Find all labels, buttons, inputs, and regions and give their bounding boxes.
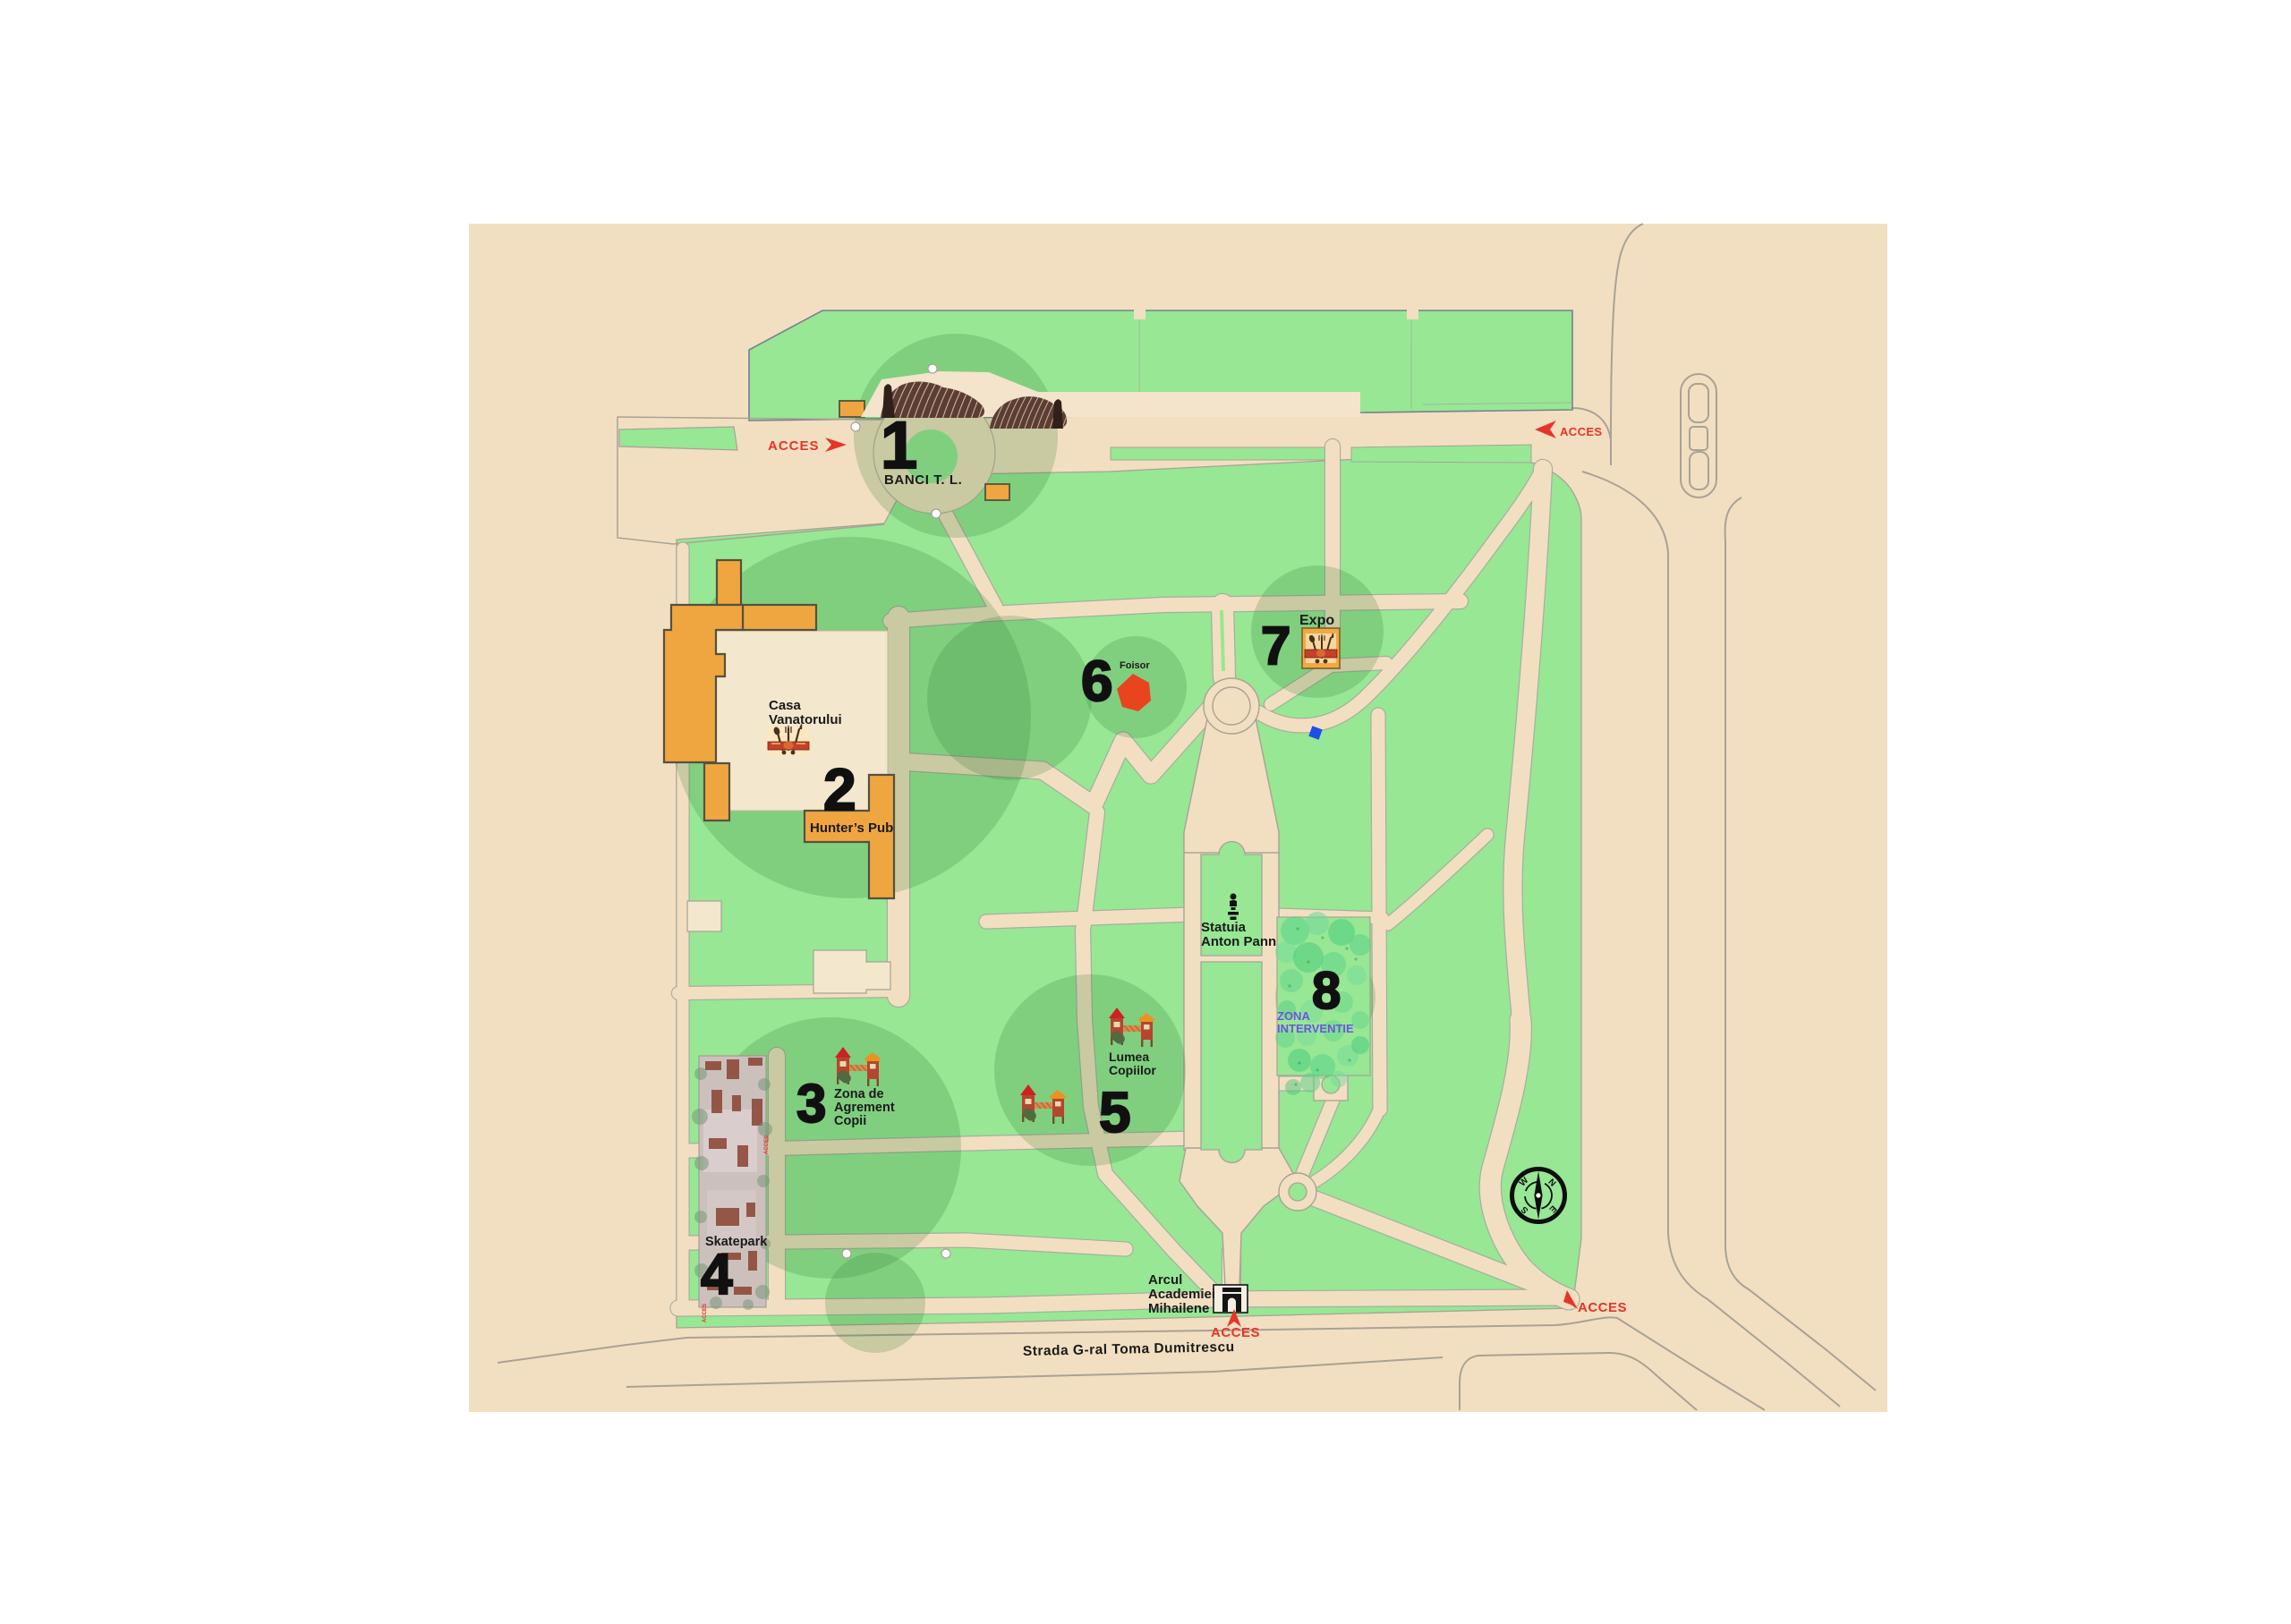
svg-text:Agrement: Agrement	[834, 1101, 895, 1115]
svg-text:ACCES: ACCES	[1578, 1300, 1627, 1315]
svg-text:ZONA: ZONA	[1277, 1009, 1310, 1023]
svg-text:3: 3	[796, 1074, 826, 1134]
svg-text:ACCES: ACCES	[1560, 425, 1603, 438]
svg-text:Expo: Expo	[1299, 613, 1334, 628]
svg-text:8: 8	[1312, 962, 1341, 1020]
svg-text:2: 2	[823, 756, 856, 822]
svg-text:Statuia: Statuia	[1201, 920, 1247, 935]
svg-text:7: 7	[1261, 616, 1290, 676]
svg-text:6: 6	[1081, 649, 1113, 713]
svg-text:Foisor: Foisor	[1120, 660, 1150, 671]
svg-text:Hunter’s Pub: Hunter’s Pub	[810, 821, 893, 836]
svg-text:INTERVENTIE: INTERVENTIE	[1277, 1022, 1354, 1035]
svg-text:5: 5	[1099, 1080, 1131, 1144]
svg-text:Anton Pann: Anton Pann	[1201, 934, 1276, 949]
svg-text:Casa: Casa	[769, 698, 802, 713]
svg-text:Copiilor: Copiilor	[1109, 1063, 1156, 1077]
svg-text:ACCES: ACCES	[768, 438, 820, 454]
svg-text:ACCES: ACCES	[703, 1304, 708, 1322]
svg-text:Vanatorului: Vanatorului	[769, 712, 842, 727]
svg-text:Zona de: Zona de	[834, 1087, 884, 1101]
svg-text:BANCI T. L.: BANCI T. L.	[884, 472, 962, 488]
svg-text:4: 4	[701, 1242, 733, 1306]
svg-text:Mihailene: Mihailene	[1148, 1301, 1209, 1316]
svg-text:ACCES: ACCES	[1211, 1325, 1260, 1340]
svg-text:Arcul: Arcul	[1148, 1272, 1182, 1288]
svg-text:1: 1	[881, 408, 917, 482]
svg-text:Academiei: Academiei	[1148, 1287, 1215, 1302]
svg-text:ACCES: ACCES	[764, 1135, 770, 1154]
svg-text:Lumea: Lumea	[1109, 1050, 1149, 1064]
svg-text:Copii: Copii	[834, 1114, 866, 1128]
